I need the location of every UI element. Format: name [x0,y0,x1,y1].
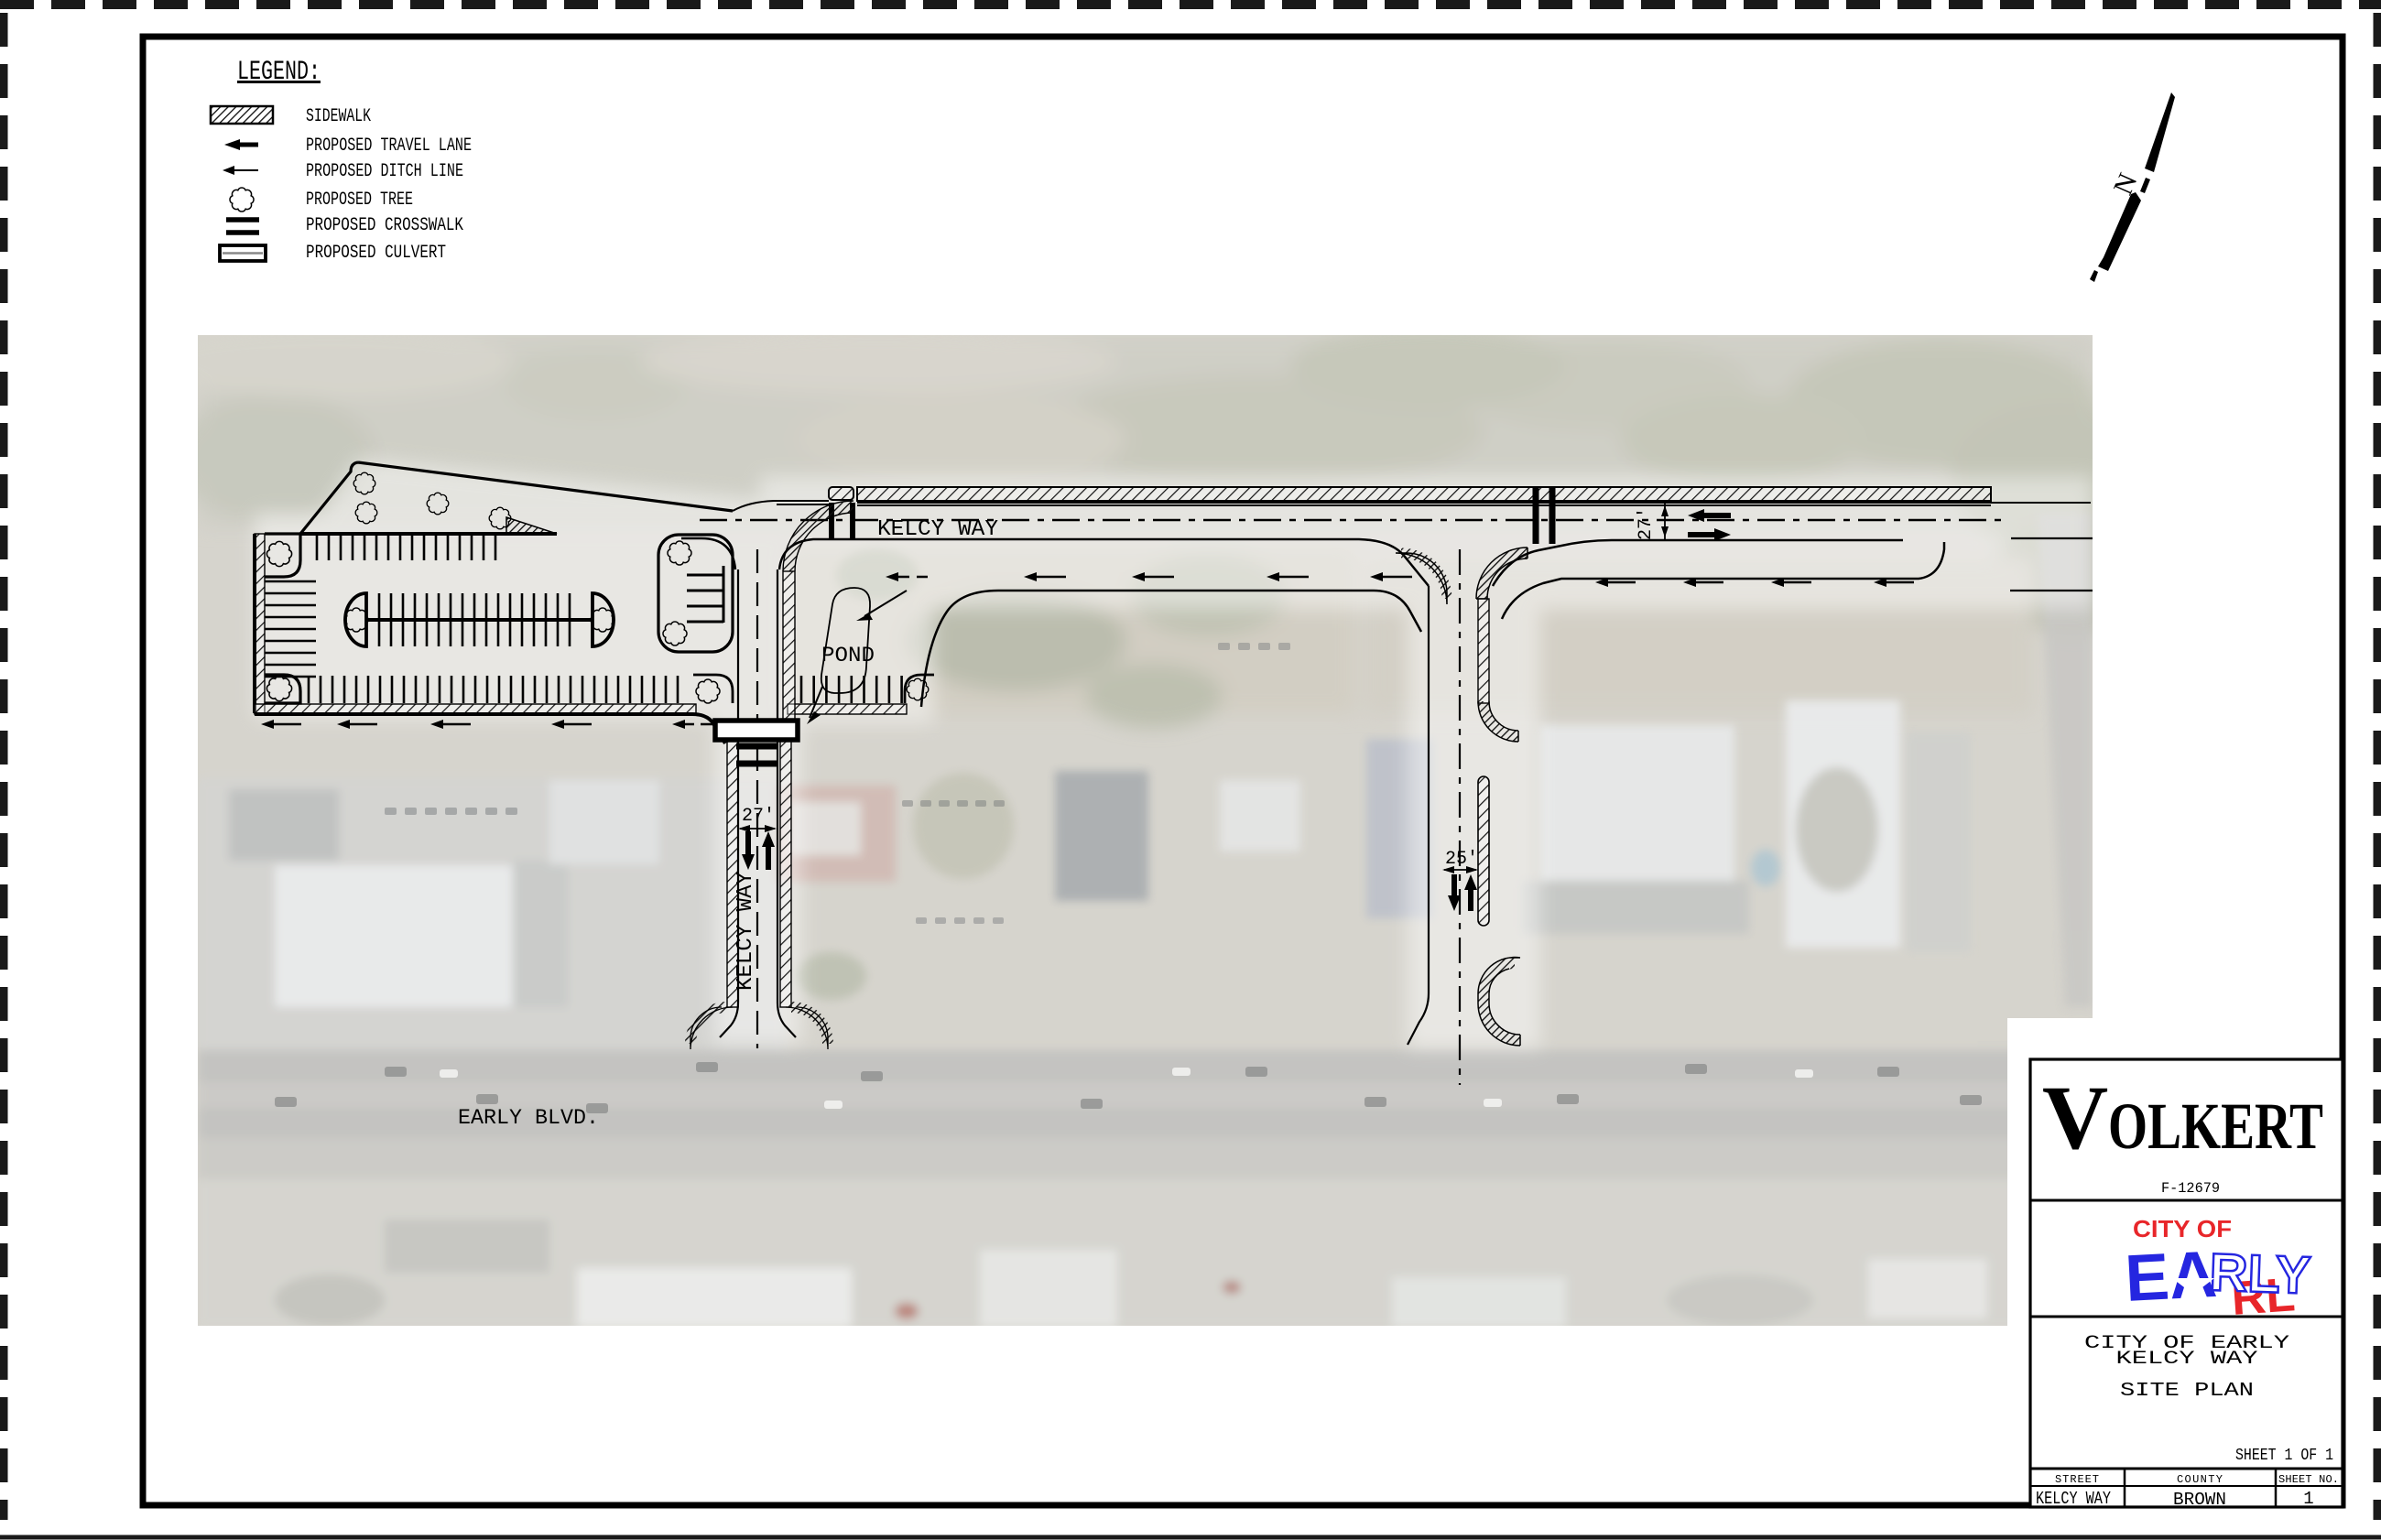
svg-text:PROPOSED CULVERT: PROPOSED CULVERT [306,243,446,264]
svg-text:27': 27' [742,806,775,827]
svg-text:PROPOSED CROSSWALK: PROPOSED CROSSWALK [306,215,463,236]
svg-text:RLY: RLY [2209,1242,2312,1306]
svg-text:F-12679: F-12679 [2161,1180,2220,1197]
svg-text:V: V [2042,1067,2108,1168]
svg-text:KELCY WAY: KELCY WAY [734,872,758,991]
svg-text:PROPOSED TREE: PROPOSED TREE [306,190,413,211]
svg-text:KELCY WAY: KELCY WAY [2036,1489,2111,1509]
svg-text:EARLY BLVD.: EARLY BLVD. [458,1106,599,1130]
svg-text:27': 27' [1636,507,1657,540]
svg-text:BROWN: BROWN [2173,1490,2226,1510]
svg-text:25': 25' [1445,849,1478,870]
svg-text:1: 1 [2303,1489,2313,1509]
svg-text:KELCY WAY: KELCY WAY [2116,1349,2258,1370]
svg-text:STREET: STREET [2055,1473,2099,1486]
svg-text:LEGEND:: LEGEND: [237,57,321,88]
svg-text:EA: EA [2124,1238,2219,1316]
svg-text:CITY OF: CITY OF [2133,1215,2232,1242]
svg-text:PROPOSED TRAVEL LANE: PROPOSED TRAVEL LANE [306,136,472,157]
svg-text:SHEET 1 OF 1: SHEET 1 OF 1 [2235,1447,2333,1465]
svg-text:PROPOSED DITCH LINE: PROPOSED DITCH LINE [306,161,463,182]
svg-text:OLKERT: OLKERT [2108,1090,2323,1163]
svg-text:SIDEWALK: SIDEWALK [306,106,371,127]
svg-text:SHEET NO.: SHEET NO. [2278,1473,2339,1486]
svg-text:SITE PLAN: SITE PLAN [2120,1381,2254,1402]
svg-text:POND: POND [821,644,875,667]
